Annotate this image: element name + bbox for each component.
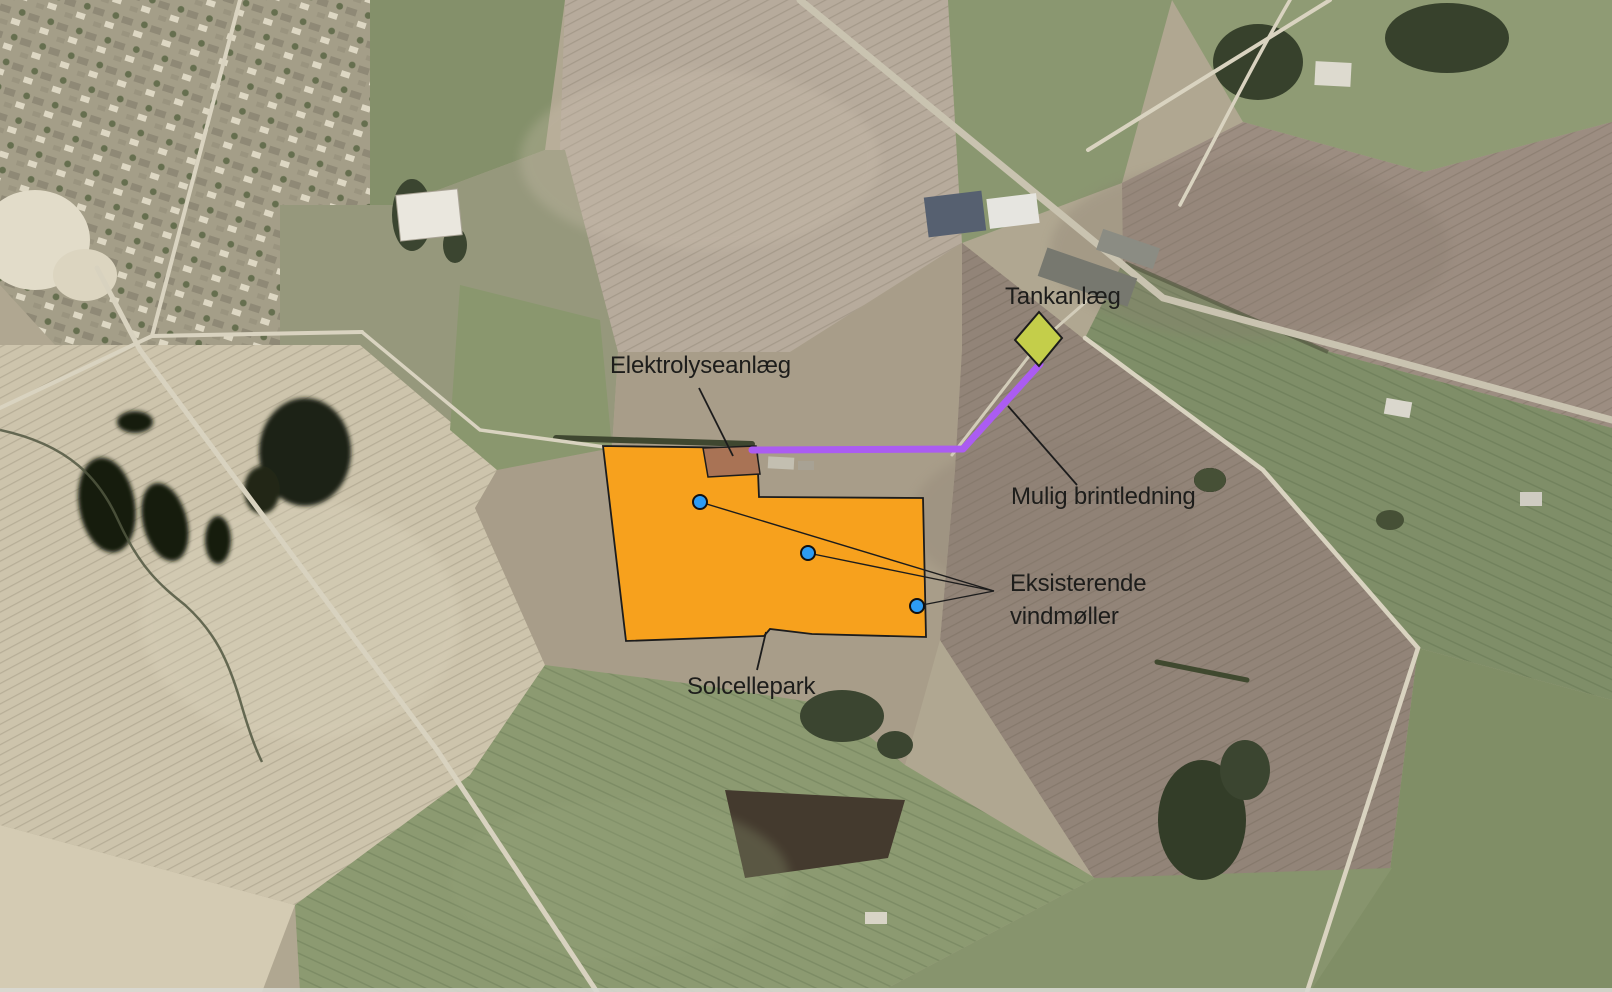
forest-patch bbox=[1385, 3, 1509, 73]
building bbox=[768, 456, 795, 469]
lake bbox=[205, 516, 231, 564]
label-electrolysis-plant: Elektrolyseanlæg bbox=[610, 352, 791, 381]
building bbox=[865, 912, 887, 924]
building bbox=[986, 193, 1039, 229]
wind-turbine-dot bbox=[801, 546, 815, 560]
label-tank-facility: Tankanlæg bbox=[1005, 283, 1121, 312]
forest-patch bbox=[1220, 740, 1270, 800]
basemap-fields bbox=[0, 0, 1612, 992]
building bbox=[1520, 492, 1542, 506]
building bbox=[396, 189, 462, 241]
wind-turbine-dot bbox=[693, 495, 707, 509]
forest-patch bbox=[1194, 468, 1226, 492]
building bbox=[798, 461, 814, 470]
aerial-planning-map: Tankanlæg Elektrolyseanlæg Mulig brintle… bbox=[0, 0, 1612, 992]
label-solar-park: Solcellepark bbox=[687, 673, 815, 702]
lake bbox=[244, 466, 280, 514]
building bbox=[924, 191, 986, 238]
building bbox=[1314, 61, 1351, 87]
lake bbox=[117, 411, 153, 433]
label-hydrogen-pipeline: Mulig brintledning bbox=[1011, 483, 1196, 512]
label-existing-wind-turbines-line2: vindmøller bbox=[1010, 600, 1146, 633]
forest-patch bbox=[1376, 510, 1404, 530]
bottom-edge-strip bbox=[0, 988, 1612, 992]
wind-turbine-dot bbox=[910, 599, 924, 613]
label-existing-wind-turbines-line1: Eksisterende bbox=[1010, 567, 1146, 600]
map-canvas bbox=[0, 0, 1612, 992]
label-existing-wind-turbines: Eksisterende vindmøller bbox=[1010, 567, 1146, 633]
forest-patch bbox=[877, 731, 913, 759]
